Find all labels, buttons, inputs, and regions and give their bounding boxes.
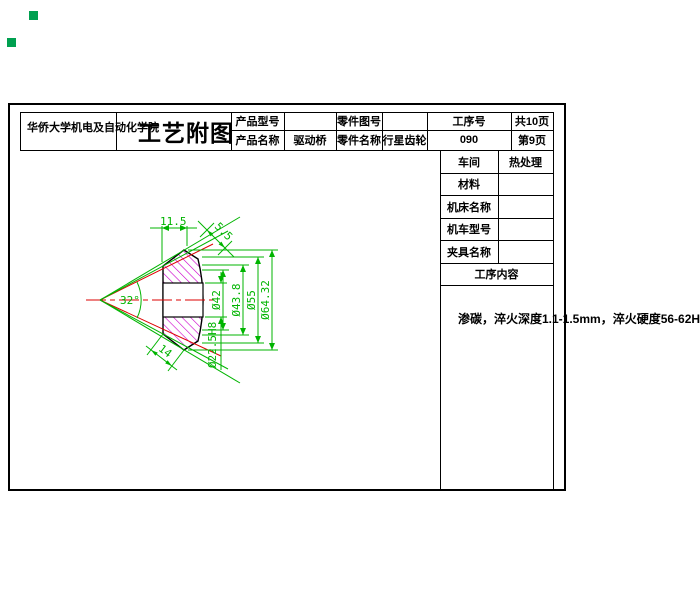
centerlines bbox=[86, 244, 221, 356]
dim-tooth-depth: 5.5 bbox=[212, 220, 235, 243]
dim-d42: Ø42 bbox=[210, 290, 223, 310]
dim-d55: Ø55 bbox=[245, 290, 258, 310]
dim-d64-32: Ø64.32 bbox=[259, 280, 272, 320]
dim-back-width: 14 bbox=[156, 342, 175, 361]
dim-bore: Ø22.5H8 bbox=[206, 322, 219, 368]
dim-d43-8: Ø43.8 bbox=[230, 283, 243, 316]
dim-top-width: 11.5 bbox=[160, 215, 187, 228]
gear-drawing: 11.5 5.5 32° 14 Ø42 Ø43.8 Ø55 Ø64.32 Ø22… bbox=[0, 0, 700, 600]
dim-cone-angle: 32° bbox=[120, 294, 140, 307]
cad-process-sheet: { "grips": { "color": "#00a050" }, "head… bbox=[0, 0, 700, 600]
